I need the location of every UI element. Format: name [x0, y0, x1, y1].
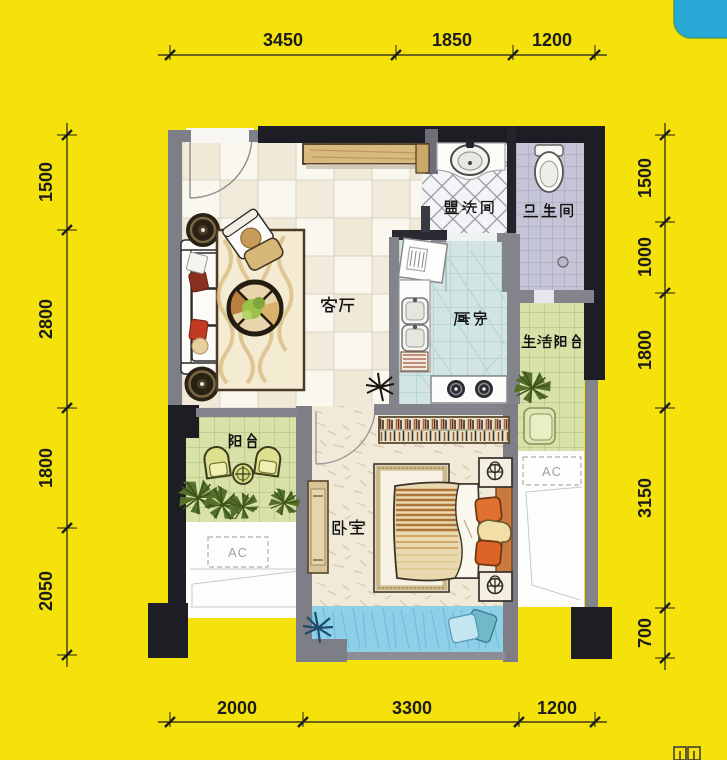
svg-text:3450: 3450 — [263, 30, 303, 50]
svg-text:1800: 1800 — [36, 448, 56, 488]
svg-text:3300: 3300 — [392, 698, 432, 718]
svg-text:AC: AC — [542, 464, 562, 479]
svg-text:2800: 2800 — [36, 299, 56, 339]
svg-text:1200: 1200 — [537, 698, 577, 718]
svg-text:700: 700 — [635, 618, 655, 648]
svg-text:AC: AC — [228, 545, 248, 560]
svg-text:3150: 3150 — [635, 478, 655, 518]
svg-text:2050: 2050 — [36, 571, 56, 611]
svg-text:1800: 1800 — [635, 330, 655, 370]
svg-text:1850: 1850 — [432, 30, 472, 50]
svg-text:1500: 1500 — [36, 162, 56, 202]
svg-text:1000: 1000 — [635, 237, 655, 277]
svg-text:1500: 1500 — [635, 158, 655, 198]
svg-text:1200: 1200 — [532, 30, 572, 50]
svg-text:2000: 2000 — [217, 698, 257, 718]
